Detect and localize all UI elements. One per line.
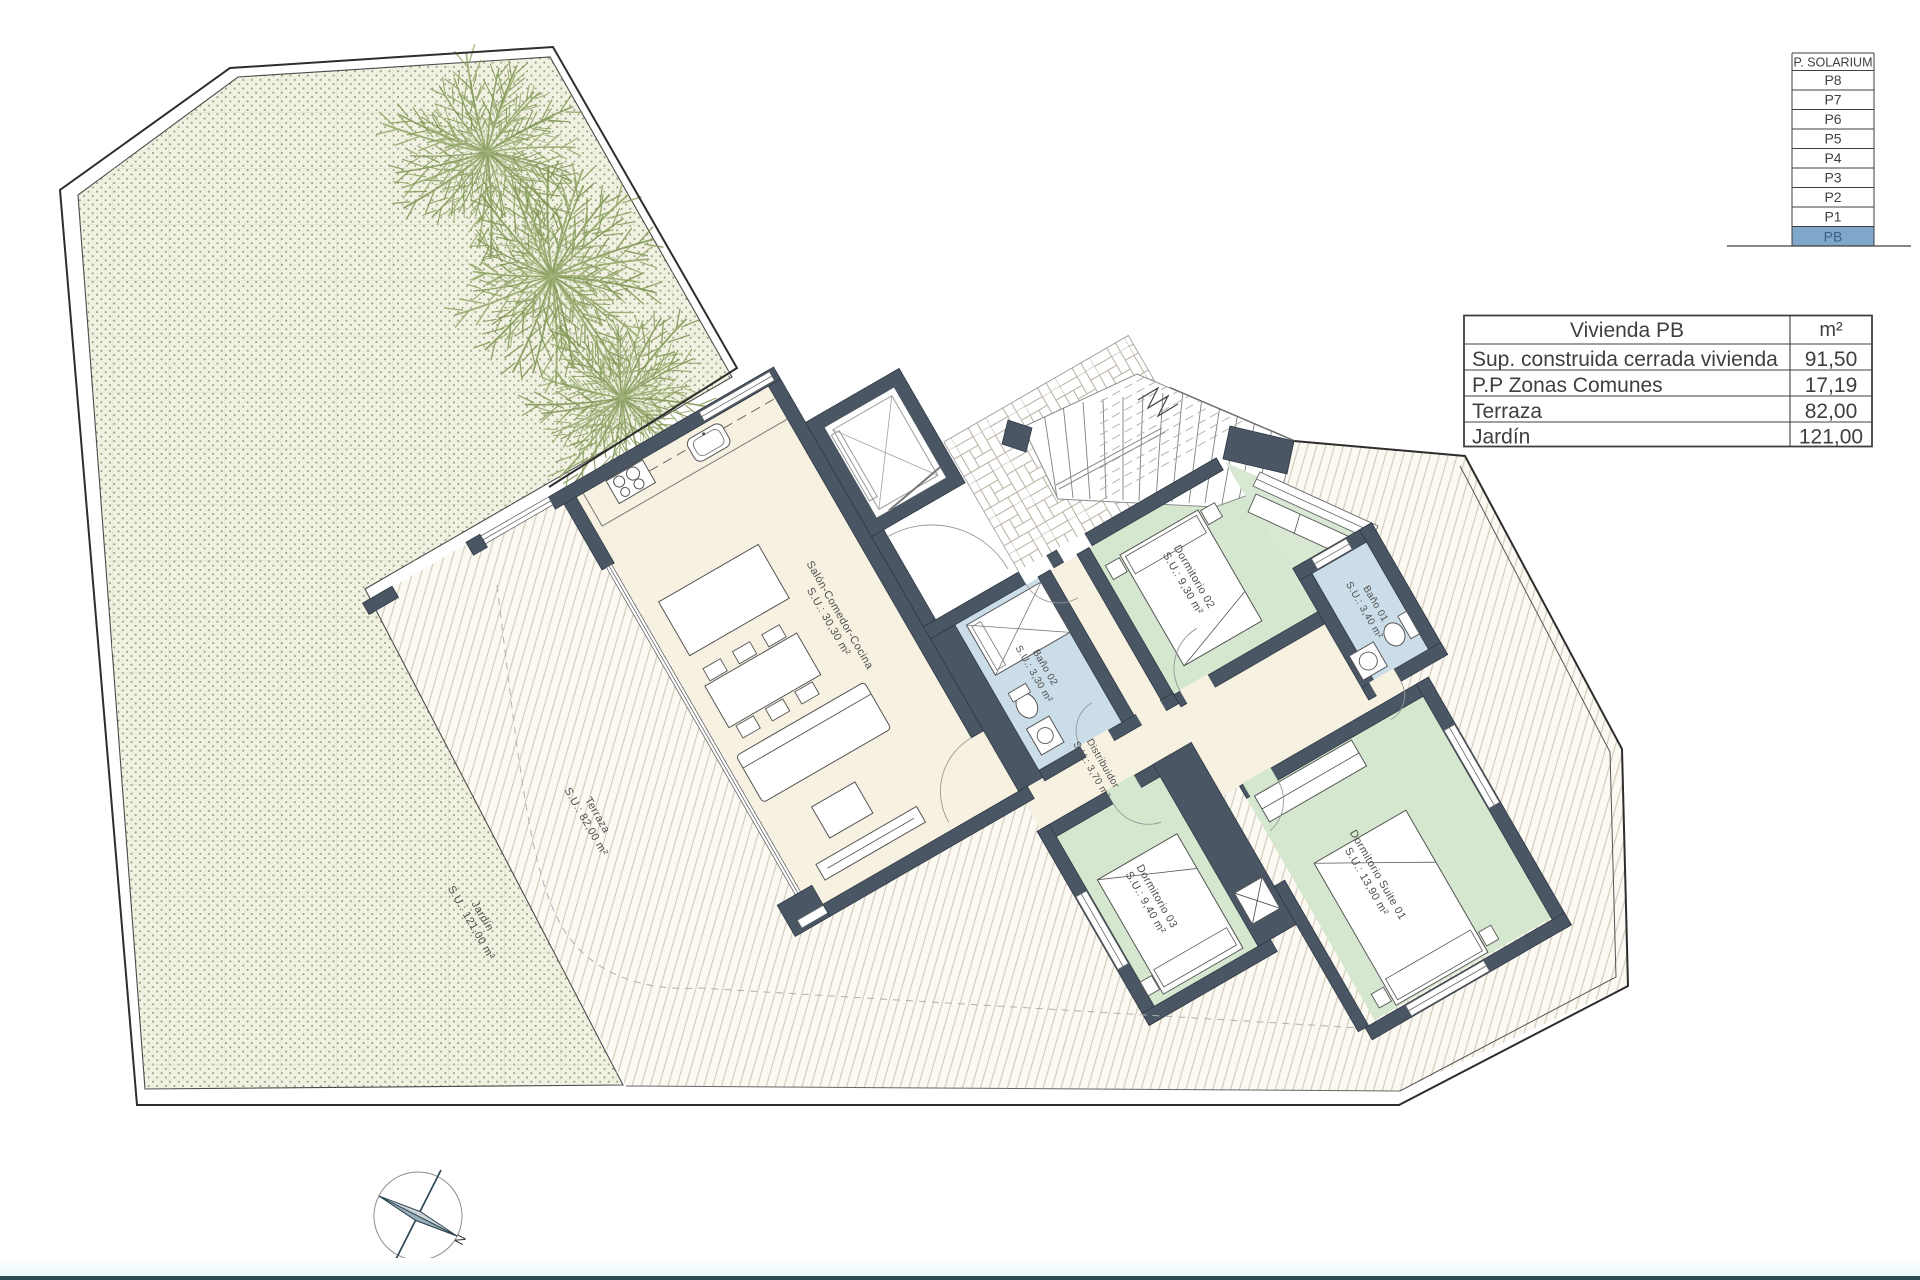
svg-text:P. SOLARIUM: P. SOLARIUM xyxy=(1794,56,1873,70)
svg-text:Jardín: Jardín xyxy=(1472,426,1530,449)
svg-text:Sup. construida cerrada vivien: Sup. construida cerrada vivienda xyxy=(1472,348,1778,371)
svg-text:P2: P2 xyxy=(1824,189,1841,205)
svg-text:P.P Zonas Comunes: P.P Zonas Comunes xyxy=(1472,374,1663,397)
svg-text:121,00: 121,00 xyxy=(1799,426,1863,449)
svg-text:P4: P4 xyxy=(1824,150,1841,166)
svg-text:PB: PB xyxy=(1824,229,1843,245)
svg-text:Vivienda PB: Vivienda PB xyxy=(1570,319,1684,342)
svg-text:P6: P6 xyxy=(1824,111,1841,127)
svg-text:P1: P1 xyxy=(1824,209,1841,225)
svg-text:P7: P7 xyxy=(1824,92,1841,108)
svg-text:P3: P3 xyxy=(1824,170,1841,186)
svg-text:m²: m² xyxy=(1819,319,1843,341)
svg-text:91,50: 91,50 xyxy=(1805,348,1858,371)
svg-text:82,00: 82,00 xyxy=(1805,400,1858,423)
svg-text:17,19: 17,19 xyxy=(1805,374,1858,397)
svg-text:P5: P5 xyxy=(1824,131,1841,147)
svg-text:P8: P8 xyxy=(1824,72,1841,88)
svg-text:Terraza: Terraza xyxy=(1472,400,1542,423)
